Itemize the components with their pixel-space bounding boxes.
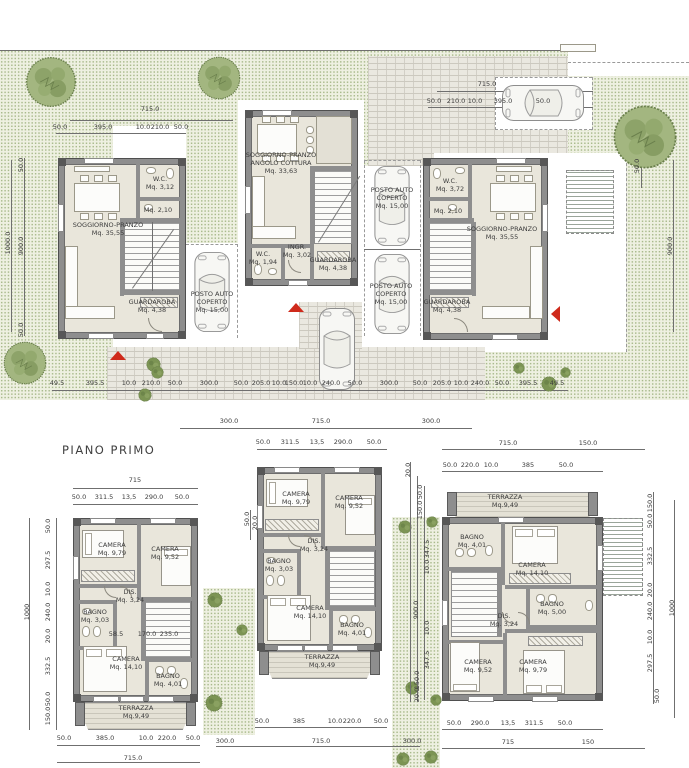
dimension-label: 150.0 xyxy=(45,707,52,726)
furniture xyxy=(276,155,285,162)
dimension-label: 290.0 xyxy=(471,720,490,727)
wall-pier xyxy=(245,110,253,118)
dimension-label: 13,5 xyxy=(310,439,324,446)
bathroom-fixture xyxy=(485,545,493,556)
pillow xyxy=(270,598,286,606)
bathroom-fixture xyxy=(433,168,441,179)
dimension-label: 220.0 xyxy=(158,735,177,742)
bed xyxy=(450,642,480,692)
dimension-line xyxy=(180,428,472,429)
tree-icon xyxy=(611,103,679,171)
use-shape xyxy=(375,166,409,245)
staircase-right-ground xyxy=(429,222,472,291)
wall-pier xyxy=(245,278,253,286)
shrub-icon xyxy=(426,516,438,528)
terrace xyxy=(259,651,380,679)
dimension-line xyxy=(257,449,387,450)
dashed-boundary-line xyxy=(186,244,238,245)
dimension-label: 50.0 xyxy=(256,439,270,446)
dimension-label: 715.0 xyxy=(312,418,331,425)
window xyxy=(334,467,360,473)
bed xyxy=(161,546,191,586)
terrace xyxy=(75,702,196,730)
dimension-label: 715 xyxy=(502,739,514,746)
dimension-line xyxy=(653,492,654,704)
floor-plan-drawing: PIANO PRIMO xyxy=(0,0,689,768)
page-title: PIANO PRIMO xyxy=(62,443,155,457)
dimension-line xyxy=(442,748,645,749)
dining-table xyxy=(490,183,536,212)
dimension-line xyxy=(424,486,425,700)
bathroom-fixture xyxy=(455,167,465,174)
partition-wall xyxy=(263,549,301,553)
dimension-line xyxy=(70,120,233,121)
furniture xyxy=(262,116,271,123)
dimension-label: 715.0 xyxy=(124,755,143,762)
wall-pier xyxy=(178,331,186,339)
wall-pier xyxy=(442,517,450,525)
bathroom-fixture xyxy=(536,594,545,603)
dimension-label: 50.0 xyxy=(186,735,200,742)
dimension-label: 50.0 xyxy=(558,720,572,727)
use-shape xyxy=(561,368,571,378)
dashed-boundary-line xyxy=(592,77,593,130)
dimension-line xyxy=(442,729,603,730)
dimension-label: 385 xyxy=(522,462,534,469)
wardrobe-closet xyxy=(81,570,135,582)
use-shape xyxy=(320,309,355,390)
dimension-label: 300.0 xyxy=(220,418,239,425)
bathroom-fixture xyxy=(167,666,176,675)
terrace xyxy=(447,492,598,518)
dimension-line xyxy=(255,727,387,728)
partition-wall xyxy=(472,222,476,296)
use-shape xyxy=(614,106,675,167)
furniture xyxy=(276,116,285,123)
bathroom-fixture xyxy=(448,204,457,211)
sofa xyxy=(482,306,530,319)
dimension-line xyxy=(73,504,198,505)
terrace-post xyxy=(588,492,598,516)
bed xyxy=(523,650,565,694)
bathroom-fixture xyxy=(180,678,188,689)
partition-wall xyxy=(145,658,192,662)
furniture xyxy=(524,175,533,182)
terrace-post xyxy=(447,492,457,516)
use-shape xyxy=(503,86,584,121)
bathroom-fixture xyxy=(144,204,153,211)
staircase-right-first xyxy=(451,571,498,637)
furniture xyxy=(510,213,519,220)
dimension-label: 150 xyxy=(582,739,594,746)
wardrobe-closet xyxy=(528,636,583,646)
furniture xyxy=(290,116,299,123)
use-shape xyxy=(195,252,229,331)
dimension-label: 10.0 xyxy=(45,582,52,596)
dimension-line xyxy=(73,488,198,489)
dimension-label: 150.0 xyxy=(579,440,598,447)
partition-wall xyxy=(329,607,376,611)
dashed-boundary-line xyxy=(495,129,592,130)
furniture xyxy=(108,213,117,220)
wall-pier xyxy=(374,467,382,475)
bathroom-fixture xyxy=(455,548,464,557)
pillow xyxy=(515,529,533,537)
furniture xyxy=(496,175,505,182)
partition-wall xyxy=(297,553,301,599)
tree-icon xyxy=(24,55,78,109)
wall-pier xyxy=(58,331,66,339)
pergola xyxy=(566,170,614,234)
bathroom-fixture xyxy=(82,608,92,615)
dimension-label: 50.0 xyxy=(45,692,52,706)
car-icon xyxy=(372,252,412,336)
dimension-label: 50.0 xyxy=(654,689,661,703)
pergola xyxy=(603,518,643,596)
partition-wall xyxy=(468,164,472,222)
wardrobe-closet xyxy=(317,251,350,262)
wardrobe-closet xyxy=(431,297,469,308)
shrub-icon xyxy=(205,694,223,712)
wall-pier xyxy=(257,643,265,651)
terrace-post xyxy=(370,651,380,675)
wall-pier xyxy=(442,693,450,701)
dimension-line xyxy=(442,471,603,472)
dimension-line xyxy=(56,518,57,730)
dimension-label: 50.0 xyxy=(559,462,573,469)
dimension-label: 50.0 xyxy=(175,494,189,501)
partition-wall xyxy=(136,164,140,222)
staircase-left-first xyxy=(145,601,191,658)
bathroom-fixture xyxy=(254,264,262,275)
bathroom-fixture xyxy=(146,167,156,174)
shrub-icon xyxy=(513,362,525,374)
pillow xyxy=(290,598,306,606)
dimension-label: 715 xyxy=(129,477,141,484)
partition-wall xyxy=(321,473,325,549)
window xyxy=(58,204,64,232)
window xyxy=(245,186,251,214)
dimension-line xyxy=(417,476,418,702)
partition-wall xyxy=(505,629,597,633)
wall-pier xyxy=(190,518,198,526)
dimension-label: 50.0 xyxy=(447,720,461,727)
window xyxy=(257,505,263,529)
sofa xyxy=(530,246,543,319)
wall-pier xyxy=(350,278,358,286)
bathroom-fixture xyxy=(93,626,101,637)
window xyxy=(332,645,358,651)
dimension-label: 332.5 xyxy=(45,657,52,676)
bathroom-fixture xyxy=(155,666,164,675)
pillow xyxy=(85,533,92,555)
dining-table xyxy=(257,124,297,154)
sofa xyxy=(65,306,115,319)
window xyxy=(150,518,176,524)
shrub-icon xyxy=(430,694,442,706)
dimension-label: 50.0 xyxy=(443,462,457,469)
dashed-boundary-line xyxy=(568,62,689,63)
wall-pier xyxy=(540,158,548,166)
shrub-icon xyxy=(424,750,438,764)
furniture xyxy=(262,155,271,162)
dimension-label: 311.5 xyxy=(95,494,114,501)
bathroom-fixture xyxy=(585,600,593,611)
partition-wall xyxy=(79,600,117,604)
bathroom-fixture xyxy=(82,626,90,637)
dimension-label: 10.0 xyxy=(328,718,342,725)
wall-pier xyxy=(423,158,431,166)
tree-icon xyxy=(196,55,242,101)
furniture xyxy=(94,175,103,182)
pillow xyxy=(546,685,562,693)
bathroom-fixture xyxy=(266,575,274,586)
furniture xyxy=(80,213,89,220)
window xyxy=(93,696,119,702)
car-icon xyxy=(192,250,232,334)
furniture xyxy=(510,175,519,182)
pillow xyxy=(106,649,122,657)
partition-wall xyxy=(429,197,469,201)
use-shape xyxy=(4,342,45,383)
partition-wall xyxy=(429,291,476,295)
walkway xyxy=(568,50,689,76)
dimension-label: 715.0 xyxy=(499,440,518,447)
planting-strip xyxy=(203,588,255,735)
window xyxy=(468,696,494,702)
sideboard xyxy=(74,166,110,172)
window xyxy=(532,696,558,702)
wall-pier xyxy=(540,332,548,340)
window xyxy=(262,110,292,116)
dimension-line xyxy=(52,390,568,391)
dashed-boundary-line xyxy=(495,77,592,78)
pillow xyxy=(537,529,555,537)
bed xyxy=(512,526,558,564)
dimension-line xyxy=(216,746,420,747)
dimension-label: 311.5 xyxy=(525,720,544,727)
wall-pier xyxy=(73,518,81,526)
partition-wall xyxy=(140,197,180,201)
bathroom-fixture xyxy=(548,594,557,603)
dimension-label: 50.0 xyxy=(45,519,52,533)
wall-pier xyxy=(595,517,603,525)
kitchen-counter xyxy=(316,116,352,164)
wardrobe-closet xyxy=(265,519,319,531)
use-shape xyxy=(542,377,556,391)
dimension-line xyxy=(250,510,251,540)
dimension-line xyxy=(57,745,200,746)
wall-pier xyxy=(190,694,198,702)
partition-wall xyxy=(281,248,285,280)
wall-pier xyxy=(423,332,431,340)
car-icon xyxy=(317,306,357,392)
bathroom-fixture xyxy=(306,126,314,134)
dashed-boundary-line xyxy=(420,160,421,336)
bathroom-fixture xyxy=(306,136,314,144)
staircase-center-ground xyxy=(314,170,352,244)
bed xyxy=(266,479,308,507)
dimension-label: 50.0 xyxy=(57,735,71,742)
car-icon xyxy=(500,83,586,123)
dimension-line xyxy=(674,500,675,718)
window xyxy=(304,645,328,651)
dashed-boundary-line xyxy=(626,153,627,352)
partition-wall xyxy=(498,571,502,637)
entrance-arrow xyxy=(551,306,560,322)
window xyxy=(90,518,116,524)
wall-pier xyxy=(374,643,382,651)
partition-wall xyxy=(505,585,597,589)
dimension-label: 50.0 xyxy=(367,439,381,446)
shrub-icon xyxy=(207,592,223,608)
sideboard xyxy=(496,166,532,172)
dining-table xyxy=(74,183,120,212)
dimension-label: 13,5 xyxy=(122,494,136,501)
dimension-label: 290.0 xyxy=(145,494,164,501)
window xyxy=(120,696,144,702)
partition-wall xyxy=(137,524,141,600)
tree-icon xyxy=(2,340,48,386)
furniture xyxy=(94,213,103,220)
window xyxy=(84,158,114,164)
partition-wall xyxy=(113,604,117,650)
partition-wall xyxy=(120,291,180,295)
use-shape xyxy=(427,517,438,528)
dimension-label: 20.0 xyxy=(45,629,52,643)
window xyxy=(146,333,164,339)
wall-pier xyxy=(73,694,81,702)
bathroom-fixture xyxy=(266,557,276,564)
shrub-icon xyxy=(396,752,410,766)
partition-wall xyxy=(145,662,149,696)
dimension-label: 13,5 xyxy=(501,720,515,727)
bathroom-fixture xyxy=(306,146,314,154)
dimension-line xyxy=(673,160,674,332)
dashed-boundary-line xyxy=(237,244,238,338)
furniture xyxy=(290,155,299,162)
dimension-label: 311.5 xyxy=(281,439,300,446)
bathroom-fixture xyxy=(277,575,285,586)
bathroom-fixture xyxy=(351,615,360,624)
partition-wall xyxy=(329,611,333,645)
shrub-icon xyxy=(560,367,571,378)
wall-pier xyxy=(178,158,186,166)
dimension-label: 220.0 xyxy=(461,462,480,469)
bathroom-fixture xyxy=(268,268,277,275)
shrub-icon xyxy=(151,366,164,379)
window xyxy=(496,158,526,164)
furniture xyxy=(80,175,89,182)
terrace-post xyxy=(259,651,269,675)
bathroom-fixture xyxy=(166,168,174,179)
bathroom-fixture xyxy=(364,627,372,638)
use-shape xyxy=(206,695,222,711)
furniture xyxy=(496,213,505,220)
dimension-line xyxy=(11,160,12,332)
shrub-icon xyxy=(541,376,557,392)
use-shape xyxy=(139,389,152,402)
use-shape xyxy=(397,753,410,766)
bathroom-fixture xyxy=(339,615,348,624)
use-shape xyxy=(431,695,442,706)
dimension-line xyxy=(410,462,411,702)
pillow xyxy=(164,549,188,556)
dimension-line xyxy=(56,133,186,134)
window xyxy=(73,556,79,580)
pillow xyxy=(526,685,542,693)
dimension-label: 300.0 xyxy=(216,738,235,745)
dimension-label: 290.0 xyxy=(334,439,353,446)
gate xyxy=(560,44,596,52)
dimension-line xyxy=(24,158,25,336)
bed xyxy=(83,646,127,692)
wardrobe-closet xyxy=(509,573,571,584)
use-shape xyxy=(375,254,409,333)
window xyxy=(542,204,548,232)
dimension-line xyxy=(364,249,420,250)
dimension-label: 50.0 xyxy=(374,718,388,725)
pillow xyxy=(453,684,477,691)
entrance-arrow xyxy=(288,303,304,312)
staircase-center-first xyxy=(329,550,375,607)
dimension-label: 715.0 xyxy=(312,738,331,745)
furniture xyxy=(524,213,533,220)
dimension-label: 10.0 xyxy=(139,735,153,742)
dashed-boundary-line xyxy=(364,160,365,336)
dimension-label: 240.0 xyxy=(45,603,52,622)
wall-pier xyxy=(595,693,603,701)
dashed-boundary-line xyxy=(364,160,420,161)
bed xyxy=(82,530,124,558)
use-shape xyxy=(425,751,438,764)
use-shape xyxy=(237,625,248,636)
car-icon xyxy=(372,164,412,248)
partition-wall xyxy=(503,633,507,696)
use-shape xyxy=(208,593,222,607)
dimension-line xyxy=(442,449,645,450)
shrub-icon xyxy=(236,624,248,636)
wall-pier xyxy=(350,110,358,118)
window xyxy=(88,333,114,339)
furniture xyxy=(108,175,117,182)
window xyxy=(274,467,300,473)
dimension-label: 10.0 xyxy=(484,462,498,469)
dimension-label: 50.0 xyxy=(72,494,86,501)
wardrobe-closet xyxy=(140,297,178,308)
shrub-icon xyxy=(138,388,152,402)
terrace-post xyxy=(186,702,196,726)
use-shape xyxy=(514,363,525,374)
dimension-label: 385.0 xyxy=(96,735,115,742)
dimension-label: 300.0 xyxy=(422,418,441,425)
window xyxy=(442,600,448,626)
use-shape xyxy=(198,57,239,98)
window xyxy=(492,334,518,340)
use-shape xyxy=(27,58,76,107)
dashed-boundary-line xyxy=(495,77,496,130)
window xyxy=(148,696,174,702)
window xyxy=(288,280,308,286)
dimension-line xyxy=(29,518,30,730)
pillow xyxy=(348,498,372,505)
dimension-label: 50.0 xyxy=(255,718,269,725)
wall-pier xyxy=(58,158,66,166)
dimension-label: 297.5 xyxy=(45,551,52,570)
use-shape xyxy=(152,367,164,379)
planting-strip xyxy=(392,517,440,768)
pillow xyxy=(86,649,102,657)
